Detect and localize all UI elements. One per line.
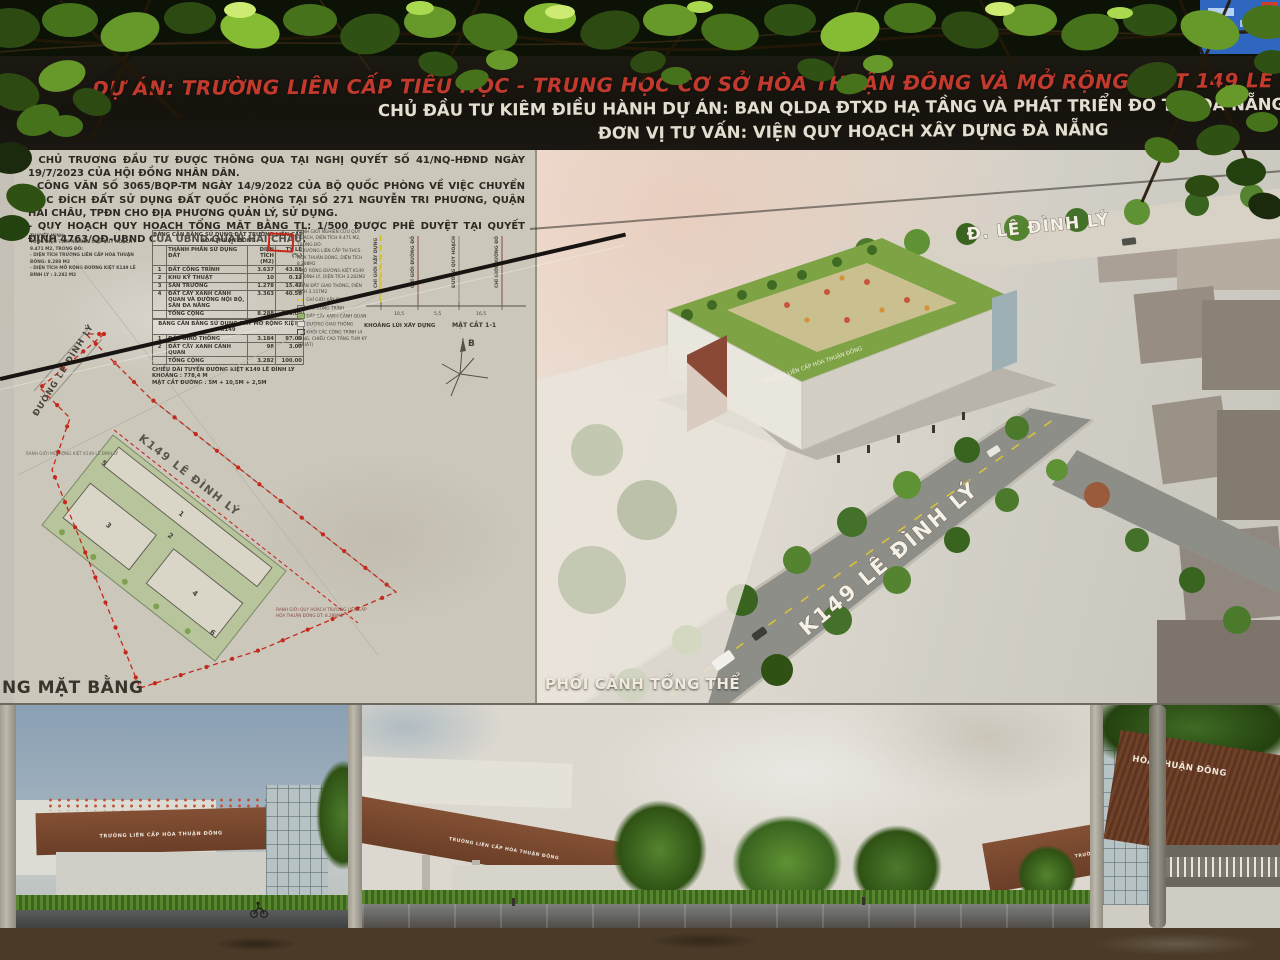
plan-caption: NG MẶT BẰNG <box>2 678 143 698</box>
consultant-line: ĐƠN VỊ TƯ VẤN: VIỆN QUY HOẠCH XÂY DỰNG Đ… <box>598 120 1109 143</box>
plan-boundary-note-2: HÒA THUẬN ĐÔNG DT: 8.288M2 <box>276 613 344 618</box>
compass-north-label: B <box>468 339 475 349</box>
compass-rose: B <box>430 332 492 404</box>
person-dot <box>512 898 515 906</box>
cyclist <box>249 901 269 919</box>
perspective-rendering: TRƯỜNG LIÊN CẤP HÒA THUẬN ĐÔNG <box>535 150 1280 707</box>
note-line: - CHỦ TRƯƠNG ĐẦU TƯ ĐƯỢC THÔNG QUA TẠI N… <box>28 154 525 180</box>
tree-trunk <box>1149 705 1166 928</box>
dirt-foreground <box>0 928 1280 960</box>
section-dim: 16,5 <box>476 311 486 317</box>
facade-band: TRƯỜNG LIÊN CẤP HÒA THUẬN ĐÔNG <box>35 807 286 856</box>
person-dot <box>862 897 865 905</box>
plan-boundary-note-1: RANH GIỚI MỞ RỘNG KIỆT K149 LÊ ĐÌNH LÝ <box>26 451 119 456</box>
facade-band-label: TRƯỜNG LIÊN CẤP HÒA THUẬN ĐÔNG <box>1075 835 1090 859</box>
perspective-art: TRƯỜNG LIÊN CẤP HÒA THUẬN ĐÔNG <box>537 150 1280 707</box>
building-roof-slab <box>362 756 573 808</box>
perspective-caption: PHỐI CẢNH TỔNG THỂ <box>545 675 740 693</box>
wet-plaza <box>362 904 1090 928</box>
investor-line: CHỦ ĐẦU TƯ KIÊM ĐIỀU HÀNH DỰ ÁN: BAN QLD… <box>378 95 1280 120</box>
frame-post <box>1090 705 1103 928</box>
section-label: ĐƯỜNG QUY HOẠCH <box>450 236 457 288</box>
blue-sign <box>1200 0 1280 54</box>
title-band: DỰ ÁN: TRƯỜNG LIÊN CẤP TIỂU HỌC - TRUNG … <box>0 56 1280 150</box>
frame-post <box>0 705 16 928</box>
road-strip <box>16 910 348 928</box>
section-caption-right: MẶT CẮT 1-1 <box>452 319 496 329</box>
fence-row <box>1163 857 1280 877</box>
elevation-panel-3: HÒA THUẬN ĐÔNG <box>1103 705 1280 928</box>
section-dim: 5,5 <box>434 311 441 317</box>
site-plan: 1 2 3 4 5 6 ĐƯỜNG LÊ ĐÌNH LÝ K149 LÊ ĐÌN… <box>18 225 398 695</box>
facade-band-label: TRƯỜNG LIÊN CẤP HÒA THUẬN ĐÔNG <box>448 837 559 861</box>
tree-blob <box>612 800 707 900</box>
note-line: - CÔNG VĂN SỐ 3065/BQP-TM NGÀY 14/9/2022… <box>28 180 525 220</box>
facade-band-label: TRƯỜNG LIÊN CẤP HÒA THUẬN ĐÔNG <box>99 830 222 839</box>
billboard-photo: DỰ ÁN: TRƯỜNG LIÊN CẤP TIỂU HỌC - TRUNG … <box>0 0 1280 960</box>
frame-post <box>348 705 362 928</box>
canopy-label: HÒA THUẬN ĐÔNG <box>1131 754 1227 779</box>
plan-boundary-note-2: RANH GIỚI QUY HOẠCH TRƯỜNG LIÊN CẤP <box>276 607 367 612</box>
elevation-panel-2: TRƯỜNG LIÊN CẤP HÒA THUẬN ĐÔNG TRƯỜNG LI… <box>362 705 1090 928</box>
elevation-panel-1: TRƯỜNG LIÊN CẤP HÒA THUẬN ĐÔNG <box>16 705 348 928</box>
